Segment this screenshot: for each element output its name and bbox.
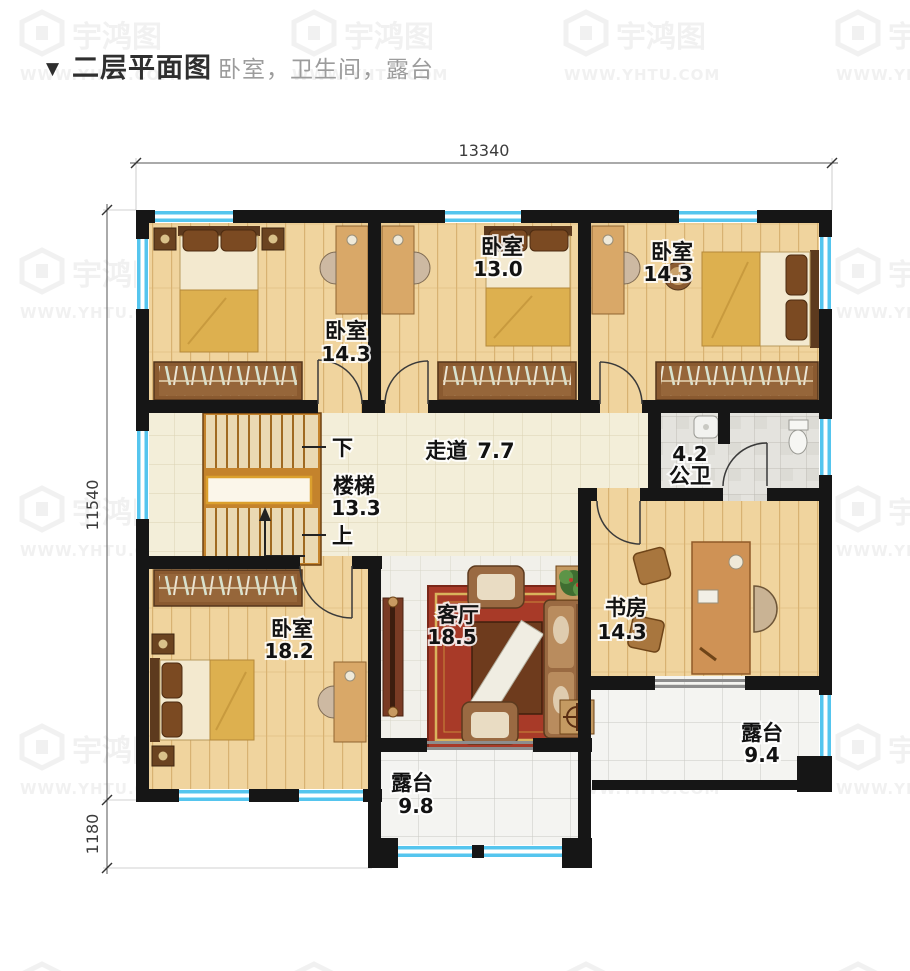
wardrobe-top-middle	[438, 362, 576, 400]
label-terrace-bottom-name: 露台	[391, 771, 433, 795]
window-bottom-bedroom-2	[292, 789, 370, 802]
window-right-bathroom	[819, 412, 832, 482]
label-stairs-name: 楼梯	[333, 474, 375, 498]
label-bedroom-top-right-name: 卧室	[651, 240, 693, 264]
window-left-stairs	[136, 424, 149, 526]
label-study-name: 书房	[605, 596, 647, 620]
label-bedroom-bottom-left-area: 18.2	[264, 639, 313, 663]
window-right-bedroom-top	[819, 230, 832, 316]
armchair-bottom	[462, 702, 518, 744]
title-marker: ▼	[46, 59, 60, 79]
label-bathroom-name: 公卫	[669, 464, 711, 488]
label-bedroom-top-left-name: 卧室	[325, 319, 367, 343]
wardrobe-top-right	[656, 362, 818, 400]
label-bedroom-top-middle-area: 13.0	[473, 257, 522, 281]
window-top-bedroom-right	[672, 210, 764, 223]
wardrobe-top-left	[154, 362, 302, 400]
armchair-top	[468, 566, 524, 608]
page-header: ▼ 二层平面图 卧室，卫生间，露台	[46, 53, 434, 84]
window-bottom-bedroom-1	[172, 789, 256, 802]
window-top-bedroom-middle	[438, 210, 528, 223]
wardrobe-bottom-left	[154, 570, 302, 606]
dimension-top-width: 13340	[459, 141, 510, 160]
window-top-bedroom-left	[148, 210, 240, 223]
page-title: 二层平面图	[72, 53, 212, 84]
staircase	[203, 413, 326, 565]
label-bedroom-bottom-left-name: 卧室	[271, 617, 313, 641]
window-right-terrace	[819, 688, 832, 756]
tv-cabinet	[383, 597, 403, 717]
label-stairs-up: 上	[332, 524, 353, 548]
label-bedroom-top-left-area: 14.3	[321, 342, 370, 366]
page-subtitle: 卧室，卫生间，露台	[218, 57, 434, 83]
label-terrace-right-area: 9.4	[744, 743, 779, 767]
label-terrace-bottom-area: 9.8	[398, 794, 433, 818]
label-bathroom-area: 4.2	[672, 442, 707, 466]
label-terrace-right-name: 露台	[741, 721, 783, 745]
label-stairs-area: 13.3	[331, 496, 380, 520]
label-bedroom-top-right-area: 14.3	[643, 262, 692, 286]
floor-plan-page: 宇鸿图 WWW.YHTU.COM ▼ 二层平面图 卧室，卫生间，露台 13340…	[0, 0, 910, 971]
label-living-room-area: 18.5	[427, 625, 476, 649]
stair-landing	[207, 477, 311, 503]
label-stairs-down: 下	[332, 436, 353, 460]
floor-plan-canvas: 宇鸿图 WWW.YHTU.COM ▼ 二层平面图 卧室，卫生间，露台 13340…	[0, 0, 910, 971]
label-study-area: 14.3	[597, 620, 646, 644]
window-left-bedroom-top	[136, 232, 149, 316]
dimension-left-bottom: 1180	[83, 814, 102, 855]
bed-top-right	[702, 250, 820, 348]
dimension-left-height: 11540	[83, 480, 102, 531]
study-desk	[692, 542, 750, 674]
label-bedroom-top-middle-name: 卧室	[481, 235, 523, 259]
floor-terrace-right	[591, 690, 819, 780]
label-living-room-name: 客厅	[437, 603, 479, 627]
bathroom-toilet	[789, 420, 808, 454]
window-terrace-bottom	[398, 845, 562, 858]
